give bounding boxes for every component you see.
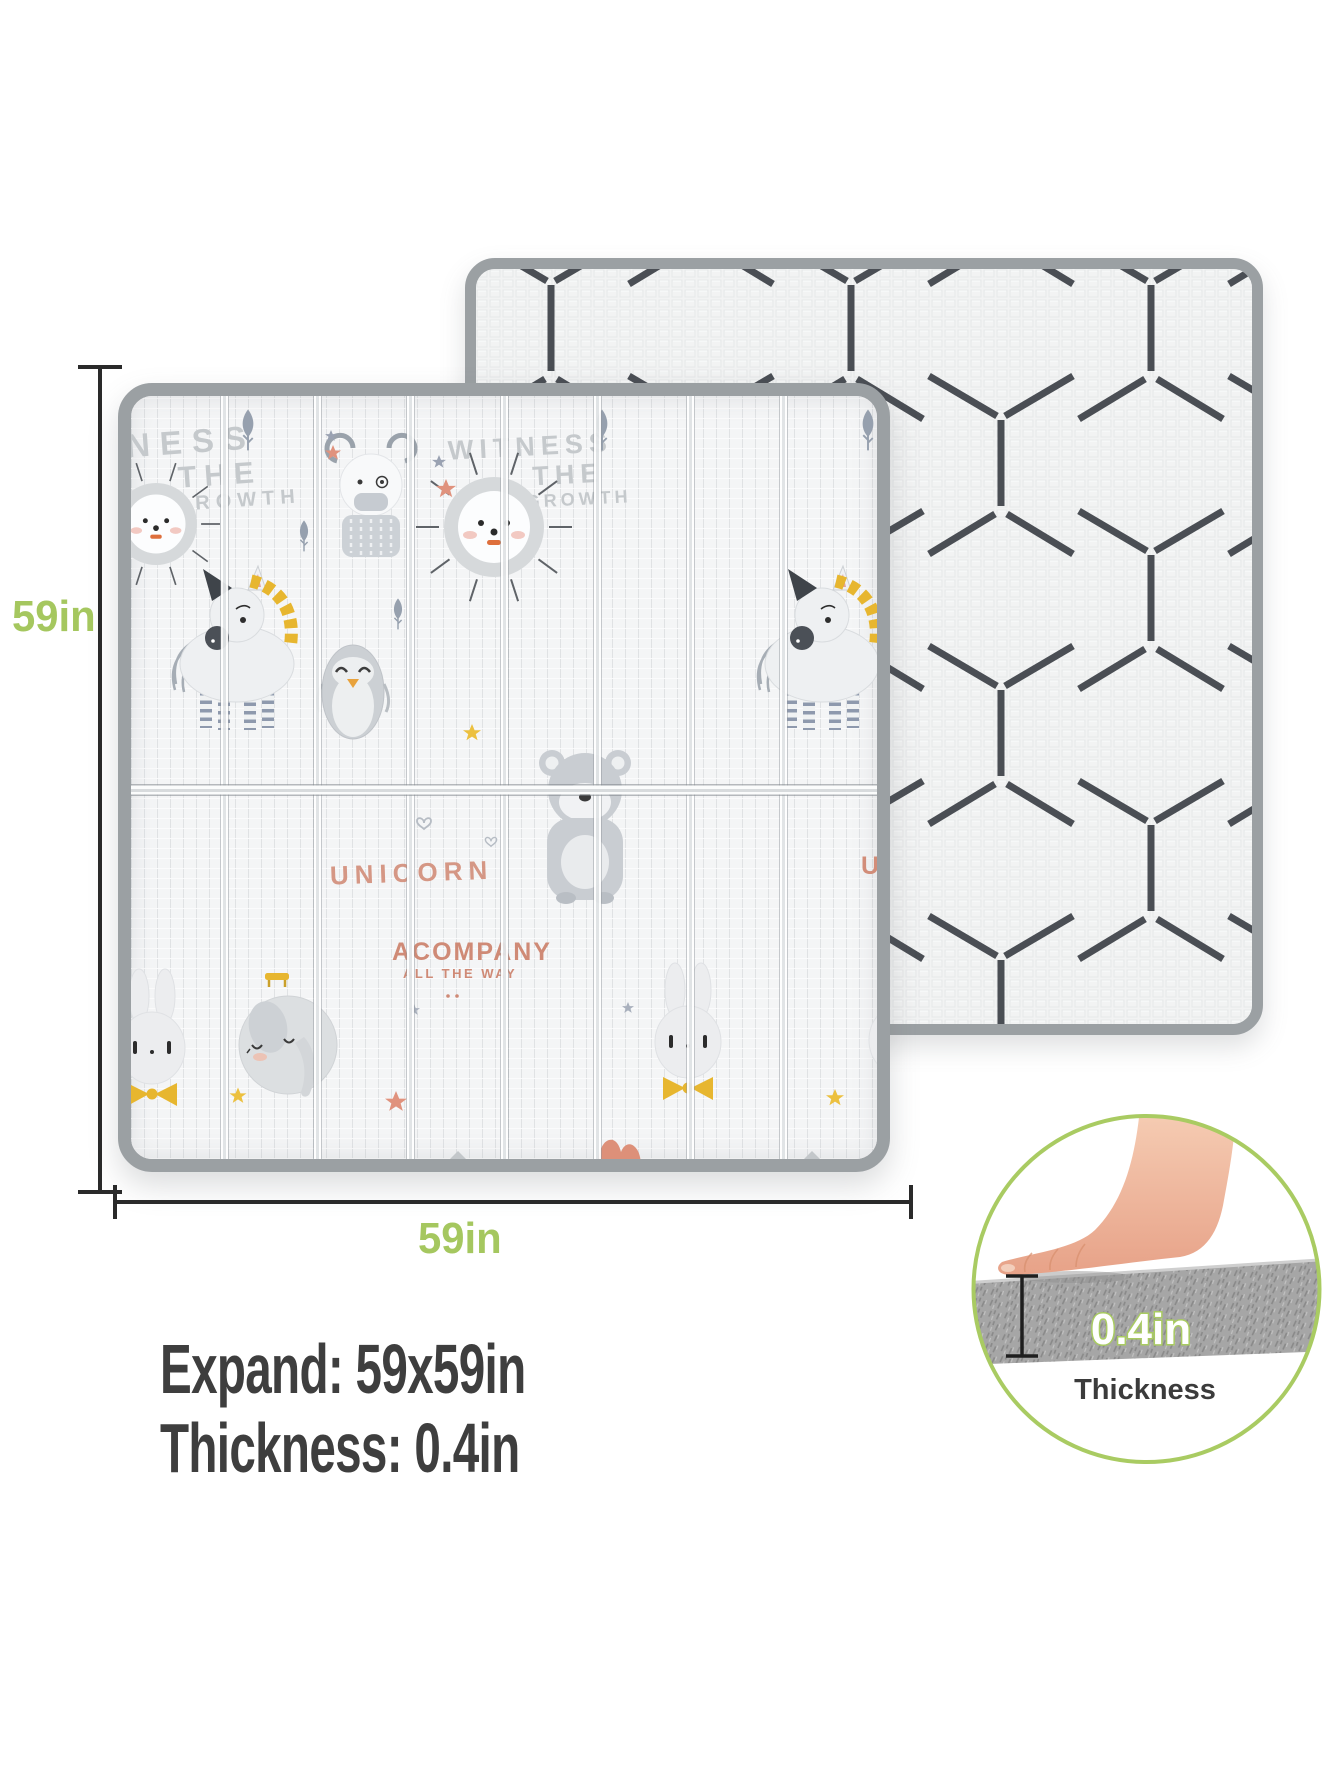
fold-seam-horizontal bbox=[131, 784, 877, 796]
rabbit-icon bbox=[131, 969, 185, 1106]
fold-seam bbox=[406, 396, 415, 1159]
fold-seam bbox=[500, 396, 509, 1159]
heart-icon bbox=[485, 837, 496, 846]
bench-icon bbox=[265, 973, 289, 987]
star-icon bbox=[230, 1088, 247, 1103]
fold-notch bbox=[450, 1151, 466, 1159]
penguin-icon bbox=[317, 645, 388, 739]
star-icon bbox=[432, 455, 446, 468]
height-dimension-cap-top bbox=[78, 365, 122, 369]
fold-notch bbox=[804, 1151, 820, 1159]
star-icon bbox=[436, 479, 456, 497]
height-dimension-label: 59in bbox=[12, 592, 96, 642]
heart-icon bbox=[417, 818, 431, 829]
svg-text:GROWTH: GROWTH bbox=[525, 486, 632, 512]
word-partial-u: U bbox=[861, 852, 877, 880]
inset-value: 0.4in bbox=[1091, 1305, 1191, 1354]
elephant-icon bbox=[239, 996, 337, 1097]
unicorn-icon bbox=[758, 566, 877, 730]
rabbit-icon bbox=[869, 961, 877, 1098]
spec-expand: Expand: 59x59in bbox=[160, 1330, 525, 1409]
tree-icon bbox=[394, 598, 402, 629]
inset-label: Thickness bbox=[1074, 1374, 1216, 1406]
product-dimension-infographic: WITNESS THE GROWTH WITNESS THE GROWTH bbox=[0, 0, 1340, 1785]
front-mat-surface: WITNESS THE GROWTH WITNESS THE GROWTH bbox=[131, 396, 877, 1159]
fold-seam bbox=[220, 396, 229, 1159]
front-mat: WITNESS THE GROWTH WITNESS THE GROWTH bbox=[118, 383, 890, 1172]
fold-seam bbox=[779, 396, 788, 1159]
cloud-icon bbox=[597, 1140, 641, 1159]
word-accompany: ACOMPANY bbox=[392, 938, 552, 966]
fold-seam bbox=[593, 396, 602, 1159]
width-dimension-cap-right bbox=[909, 1185, 913, 1219]
star-icon bbox=[385, 1091, 407, 1111]
star-icon bbox=[463, 724, 481, 740]
koala-bear-icon bbox=[539, 750, 631, 904]
width-dimension-label: 59in bbox=[418, 1214, 502, 1264]
tree-icon bbox=[300, 520, 308, 551]
thickness-inset: 0.4in Thickness bbox=[962, 1104, 1334, 1476]
star-icon bbox=[826, 1089, 844, 1105]
star-icon bbox=[622, 1002, 634, 1013]
width-dimension-line bbox=[115, 1200, 913, 1204]
spec-thickness: Thickness: 0.4in bbox=[160, 1409, 525, 1488]
width-dimension-cap-left bbox=[113, 1185, 117, 1219]
unicorn-icon bbox=[173, 566, 294, 730]
height-dimension-line bbox=[98, 367, 102, 1192]
fold-seam bbox=[313, 396, 322, 1159]
tree-icon bbox=[863, 410, 874, 451]
fold-seam bbox=[686, 396, 695, 1159]
spec-text: Expand: 59x59in Thickness: 0.4in bbox=[160, 1330, 525, 1488]
bear-icon bbox=[327, 435, 415, 557]
